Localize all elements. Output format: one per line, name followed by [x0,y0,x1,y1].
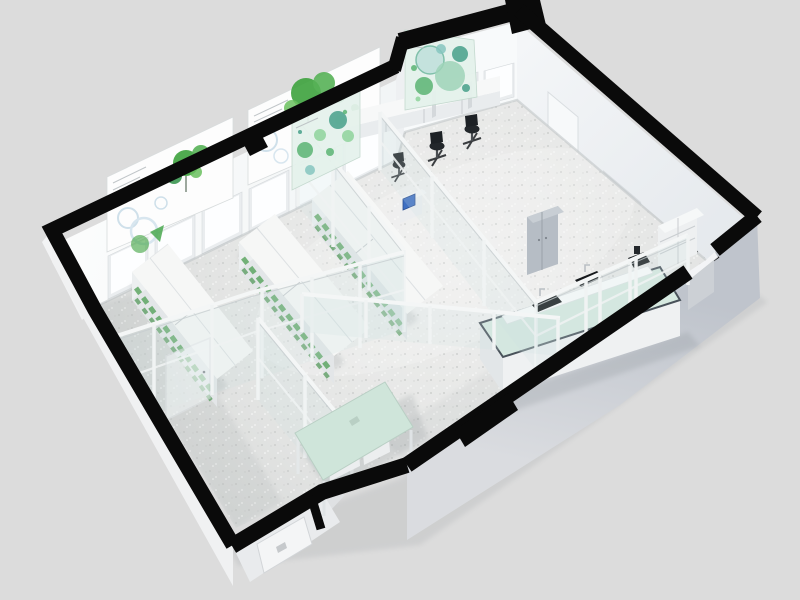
lab-floor-plan-render [0,0,800,600]
render-canvas [0,0,800,600]
